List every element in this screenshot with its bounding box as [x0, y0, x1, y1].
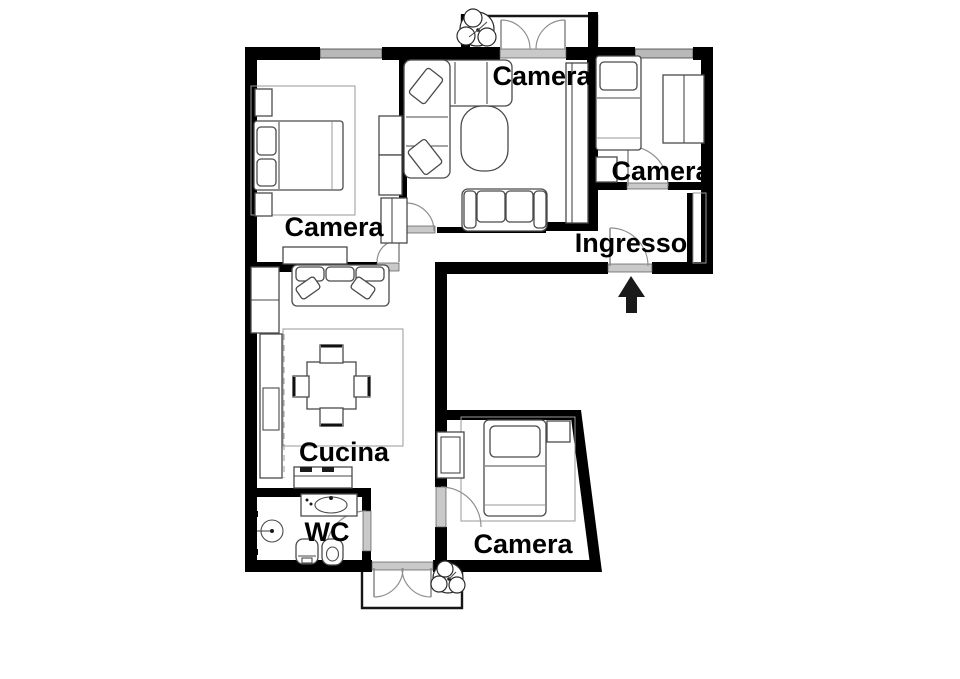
- bedroom-s-furniture: [437, 417, 575, 521]
- tall-cabinet: [251, 267, 279, 333]
- pillow: [257, 159, 276, 186]
- chair: [320, 345, 343, 363]
- cushion: [506, 191, 533, 222]
- door-living-room: [406, 203, 435, 233]
- single-bed-s: [484, 420, 546, 516]
- room-label-camera-ne: Camera: [611, 156, 711, 186]
- chair: [354, 376, 370, 397]
- shelf: [379, 155, 402, 195]
- chair: [293, 376, 309, 397]
- window-bedroom-nw: [320, 49, 382, 58]
- kitchen-counter: [260, 334, 284, 478]
- room-label-camera-sud: Camera: [473, 529, 573, 559]
- entrance-arrow-icon: [618, 276, 645, 313]
- room-label-camera-nw: Camera: [284, 212, 384, 242]
- shelf: [379, 116, 402, 155]
- nightstand: [255, 89, 272, 116]
- coffee-table: [461, 106, 508, 171]
- pillow: [600, 62, 637, 90]
- nightstand: [255, 193, 272, 216]
- armrest: [464, 191, 476, 228]
- room-label-cucina: Cucina: [299, 437, 390, 467]
- stove-counter: [294, 467, 352, 488]
- pillow: [490, 426, 540, 457]
- cushion: [326, 267, 354, 281]
- chair: [320, 408, 343, 426]
- wardrobe-ne: [663, 75, 704, 143]
- door-balcony-bottom: [372, 562, 433, 597]
- shower: [257, 520, 283, 542]
- shelf: [547, 421, 570, 442]
- pillow: [257, 127, 276, 155]
- armrest: [534, 191, 546, 228]
- single-bed-ne: [596, 56, 641, 150]
- floor-plan-canvas: Camera Camera Camera Ingresso Cucina WC …: [0, 0, 960, 679]
- nightstand-s: [437, 432, 464, 478]
- dining-table: [293, 345, 370, 426]
- room-label-ingresso: Ingresso: [575, 228, 688, 258]
- cushion: [477, 191, 505, 222]
- window-bedroom-ne: [635, 49, 693, 58]
- room-label-wc: WC: [305, 517, 350, 547]
- room-label-camera-centrale: Camera: [492, 61, 592, 91]
- desk: [381, 198, 407, 243]
- loveseat: [462, 189, 547, 231]
- door-balcony-top: [500, 20, 566, 58]
- kitchen-sofa: [292, 265, 389, 306]
- floor-plan-drawing: Camera Camera Camera Ingresso Cucina WC …: [0, 0, 960, 679]
- double-bed: [254, 121, 343, 190]
- dresser: [283, 247, 347, 264]
- washbasin: [301, 494, 357, 516]
